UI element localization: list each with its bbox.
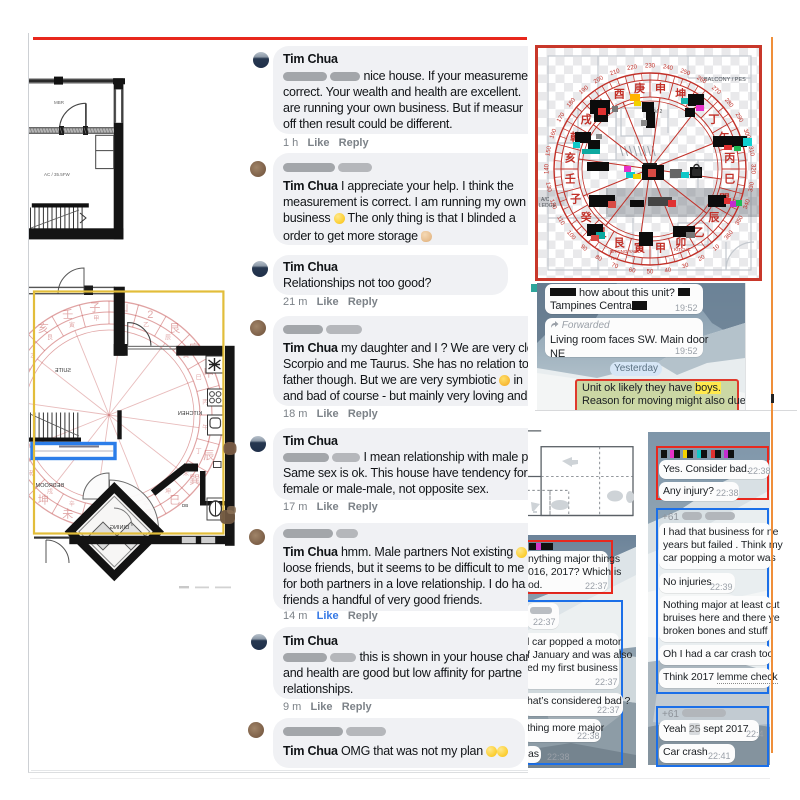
svg-text:子: 子 [570, 193, 581, 206]
svg-text:20: 20 [697, 254, 706, 263]
svg-text:BEDROOM: BEDROOM [35, 483, 64, 489]
svg-text:坤: 坤 [165, 488, 171, 496]
svg-text:寅: 寅 [69, 321, 75, 329]
svg-text:艮: 艮 [47, 335, 53, 342]
svg-text:250: 250 [679, 68, 691, 77]
svg-text:DB: DB [182, 503, 188, 508]
svg-text:壬: 壬 [565, 171, 576, 185]
svg-text:160: 160 [549, 128, 558, 140]
svg-text:巽: 巽 [189, 474, 200, 487]
svg-text:40: 40 [664, 267, 672, 274]
svg-text:亥: 亥 [38, 321, 49, 335]
svg-text:申: 申 [655, 81, 666, 95]
svg-text:BALCONY / PES: BALCONY / PES [704, 77, 746, 83]
svg-text:110: 110 [555, 215, 565, 227]
svg-text:乙: 乙 [694, 226, 705, 239]
svg-text:KITCHE: KITCHE [674, 247, 691, 252]
svg-text:甲: 甲 [655, 242, 666, 255]
svg-text:MBR: MBR [54, 100, 65, 105]
svg-text:DRYING YARD: DRYING YARD [610, 249, 642, 254]
svg-text:10: 10 [712, 243, 721, 252]
svg-text:100: 100 [565, 230, 576, 242]
svg-text:亥: 亥 [565, 150, 576, 164]
svg-text:壬: 壬 [62, 308, 73, 321]
svg-text:甲: 甲 [93, 315, 99, 322]
svg-text:60: 60 [628, 267, 636, 274]
svg-text:庚: 庚 [634, 81, 645, 95]
svg-text:辛: 辛 [69, 500, 75, 508]
svg-text:丁: 丁 [196, 449, 202, 456]
svg-text:SUITE: SUITE [54, 368, 71, 374]
svg-text:巳: 巳 [196, 374, 202, 381]
svg-text:巳: 巳 [724, 172, 735, 185]
svg-text:子: 子 [89, 301, 100, 314]
svg-text:辰: 辰 [708, 211, 720, 224]
svg-text:30: 30 [681, 262, 690, 270]
svg-text:170: 170 [556, 111, 567, 123]
svg-text:200: 200 [593, 75, 605, 86]
svg-text:RA: RA [611, 256, 617, 261]
svg-text:50: 50 [647, 270, 654, 276]
svg-text:140: 140 [545, 163, 551, 174]
svg-text:240: 240 [662, 64, 674, 72]
svg-text:艮: 艮 [169, 322, 180, 335]
svg-text:癸: 癸 [580, 210, 593, 224]
svg-text:310: 310 [747, 146, 755, 158]
svg-text:90: 90 [579, 244, 588, 253]
svg-text:丁: 丁 [708, 113, 719, 126]
svg-text:辰: 辰 [165, 335, 171, 342]
svg-text:酉: 酉 [614, 88, 625, 101]
svg-text:230: 230 [645, 64, 656, 70]
svg-text:360: 360 [724, 229, 735, 241]
svg-text:乙: 乙 [143, 322, 149, 329]
svg-text:220: 220 [627, 64, 639, 72]
svg-text:2: 2 [147, 309, 153, 321]
svg-text:70: 70 [610, 262, 619, 270]
svg-text:DINING: DINING [110, 525, 129, 531]
svg-text:艮: 艮 [614, 235, 626, 249]
svg-text:AC / 35.5FW: AC / 35.5FW [44, 172, 71, 177]
svg-text:80: 80 [594, 254, 603, 263]
svg-text:290: 290 [734, 112, 745, 124]
svg-text:未: 未 [62, 508, 73, 521]
svg-text:戌: 戌 [581, 112, 592, 126]
svg-text:巳: 巳 [169, 495, 180, 507]
svg-text:丙: 丙 [724, 151, 735, 164]
svg-text:KITCHEN: KITCHEN [178, 411, 202, 417]
svg-text:M 2: M 2 [654, 109, 663, 115]
svg-text:辰: 辰 [203, 450, 214, 462]
svg-text:320: 320 [749, 164, 755, 175]
svg-text:150: 150 [545, 145, 553, 157]
svg-text:210: 210 [609, 68, 621, 77]
